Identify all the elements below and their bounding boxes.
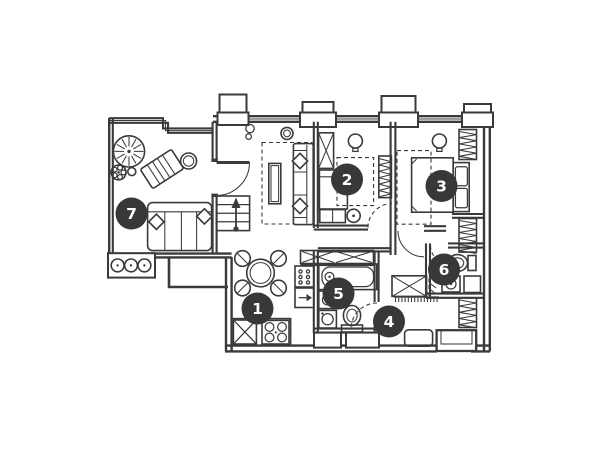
- duct-box: [314, 333, 341, 348]
- drawer-unit-icon: [320, 210, 346, 223]
- corridor-closet: [301, 251, 374, 265]
- wardrobe-icon: [319, 133, 334, 169]
- exterior-step-wall: [169, 258, 228, 287]
- entry-porch: [437, 330, 477, 351]
- balcony-door: [217, 163, 250, 196]
- boiler-icon: [464, 276, 481, 293]
- bedroom2-door-arc: [368, 204, 392, 228]
- pillow: [455, 188, 467, 207]
- kitchen-tall-units: [295, 266, 314, 308]
- chimney-pilaster-3: [379, 96, 418, 127]
- chimney-pilaster-4: [462, 104, 493, 127]
- right-wall-radiators: [459, 130, 477, 328]
- room-marker-label-5: 5: [333, 285, 344, 303]
- door-arc: [217, 163, 250, 196]
- room-marker-label-1: 1: [252, 300, 263, 318]
- side-table-icon: [181, 153, 197, 169]
- room-marker-label-2: 2: [342, 171, 353, 189]
- hall-wardrobe-icon: [392, 276, 427, 297]
- terrace-tree-icon: [113, 136, 144, 167]
- stove-icon: [262, 320, 289, 344]
- pendant-lamp-icon: [348, 134, 362, 151]
- small-pot-icon: [128, 168, 136, 176]
- terrace-planter: [108, 253, 155, 277]
- room-marker-label-4: 4: [384, 313, 395, 331]
- dining-table-icon: [247, 259, 275, 287]
- bedroom3-door-arc: [398, 231, 424, 257]
- bedside-table-icon: [347, 209, 360, 222]
- pendant-lamp-icon: [432, 134, 446, 151]
- entry-bench-icon: [405, 330, 433, 346]
- floor-plan-svg: 1234567: [0, 0, 600, 450]
- chimney-pilaster-1: [218, 95, 249, 126]
- radiator-icon: [459, 130, 477, 160]
- coffee-table-icon: [269, 163, 281, 203]
- dining-chair-icon: [235, 251, 287, 296]
- terrace-sofa-icon: [148, 203, 212, 251]
- washing-machine-icon: [319, 310, 337, 328]
- lounge-chair-icon: [140, 149, 184, 188]
- balcony-partition: [211, 122, 249, 254]
- room-marker-label-7: 7: [126, 205, 137, 223]
- radiator-icon: [459, 298, 477, 328]
- floor-plan-page: 1234567: [0, 0, 600, 450]
- room-marker-label-3: 3: [436, 178, 447, 196]
- living-sofa-icon: [292, 144, 313, 225]
- living-room: [246, 124, 313, 224]
- stairs-arrow-icon: [232, 198, 241, 232]
- radiator-icon: [379, 156, 392, 198]
- room-marker-label-6: 6: [439, 261, 450, 279]
- decor-circles-icon: [246, 124, 293, 139]
- interior-stairs: [217, 196, 250, 232]
- duct-box: [346, 333, 379, 348]
